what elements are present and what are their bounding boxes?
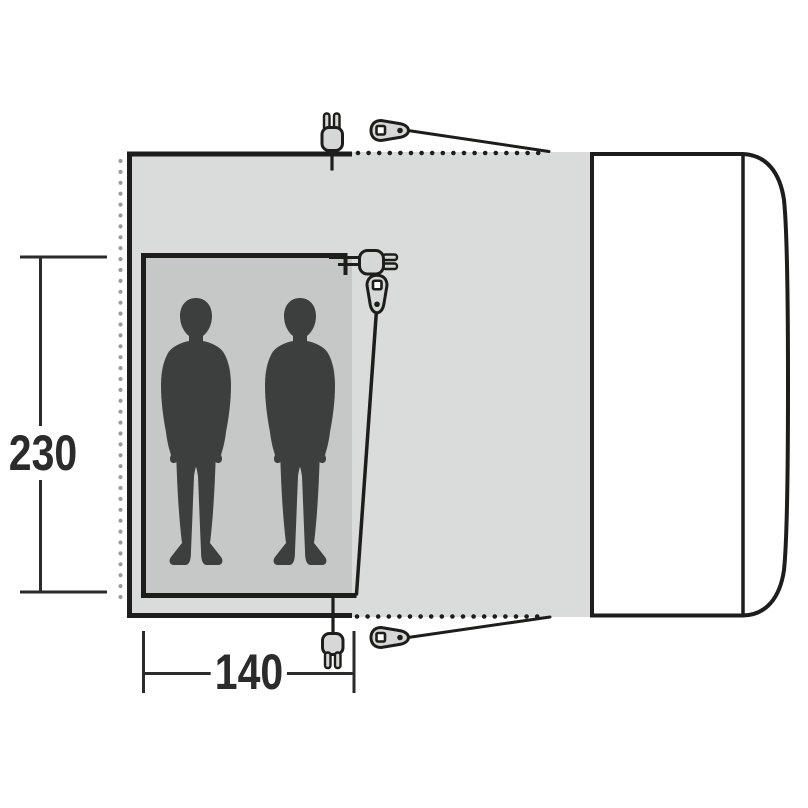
width-dimension-label: 140 [211,645,288,699]
floorplan-canvas [0,0,808,808]
tent-floorplan-diagram: 230 140 [0,0,808,808]
depth-dimension-label: 230 [5,426,82,480]
guyline-runner-icon [367,275,387,313]
guyline-runner-icon [371,628,409,648]
vehicle-outline [592,154,788,616]
guyline-runner-icon [371,121,409,141]
